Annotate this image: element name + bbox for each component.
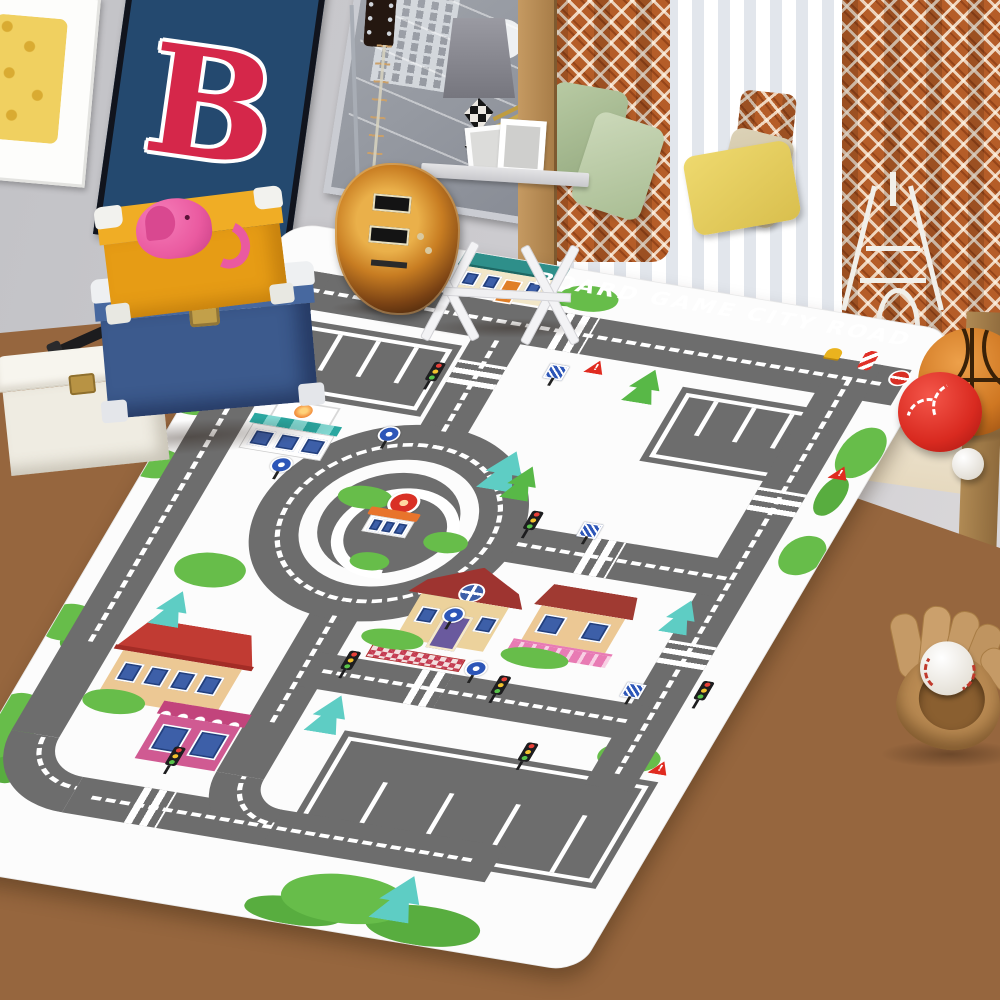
white-ball bbox=[952, 448, 984, 480]
eiffel-spire bbox=[890, 172, 896, 206]
trunk-corner bbox=[298, 382, 326, 406]
eiffel-tower-figurine bbox=[852, 178, 936, 330]
crosswalk-sign bbox=[576, 522, 603, 539]
teal-pine-tree bbox=[303, 693, 357, 735]
traffic-light bbox=[693, 680, 715, 700]
guitar-knob bbox=[425, 247, 432, 254]
eiffel-deck-2 bbox=[860, 278, 926, 283]
trunk-corner bbox=[253, 185, 283, 210]
trunk-corner bbox=[269, 282, 295, 305]
waffle-art-poster bbox=[0, 0, 101, 188]
kids-room-scene: B bbox=[0, 0, 1000, 1000]
traffic-light bbox=[517, 742, 539, 762]
pink-elephant-toy bbox=[124, 183, 232, 277]
bush bbox=[166, 548, 254, 592]
trunk-clasp bbox=[68, 373, 96, 396]
eiffel-deck-1 bbox=[866, 246, 920, 251]
guitar-pickup bbox=[372, 193, 411, 213]
green-pine-tree bbox=[621, 367, 671, 405]
trunk-corner bbox=[93, 205, 123, 230]
guitar-pickup bbox=[368, 225, 409, 245]
red-ball bbox=[898, 372, 982, 452]
guitar-knob bbox=[417, 233, 424, 240]
trunk-corner bbox=[101, 399, 129, 423]
guitar-headstock bbox=[363, 0, 397, 48]
waffle-art bbox=[0, 13, 68, 144]
crosswalk-sign bbox=[542, 363, 569, 380]
trunk-corner bbox=[105, 302, 131, 325]
sunburst-electric-guitar bbox=[325, 0, 470, 325]
basketball-line bbox=[982, 328, 1000, 396]
teal-pine-tree bbox=[148, 589, 199, 628]
guitar-stand-pole bbox=[350, 5, 361, 200]
letter-b: B bbox=[135, 10, 285, 202]
baseball-glove bbox=[882, 602, 1000, 774]
